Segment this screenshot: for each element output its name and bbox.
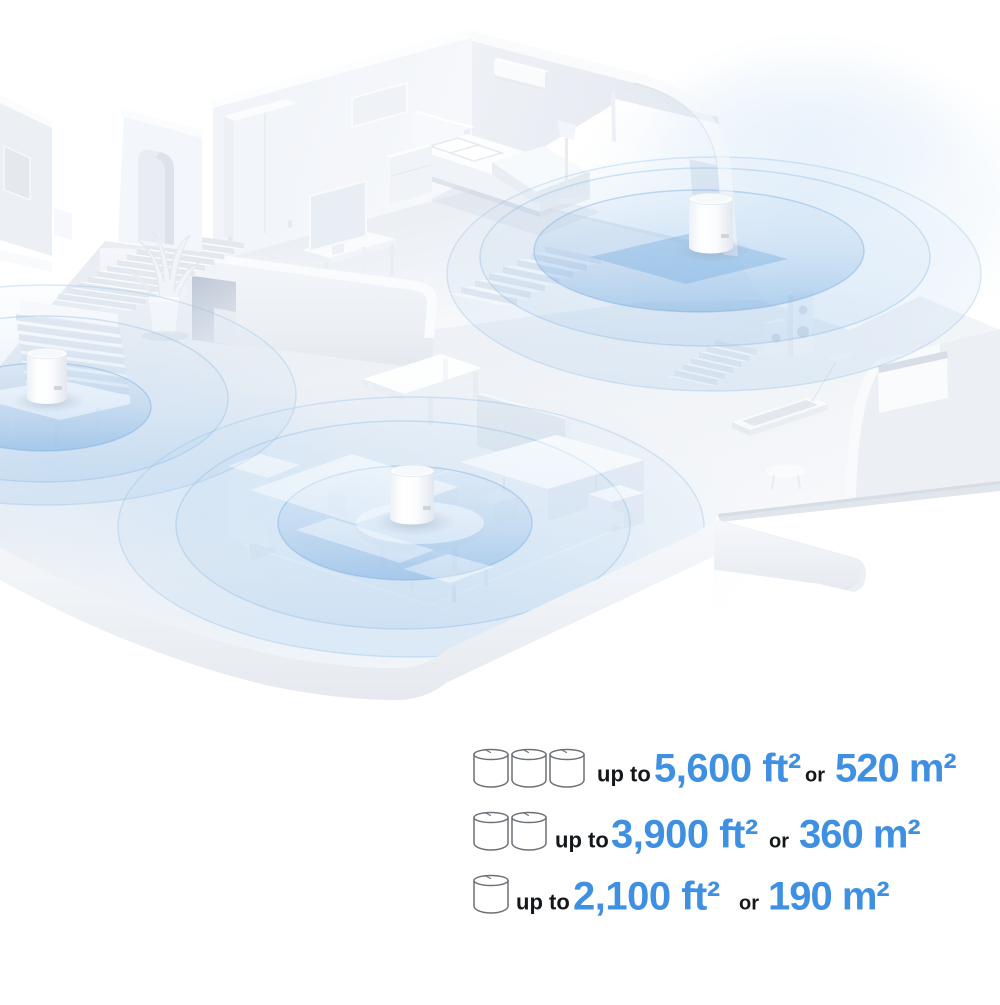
svg-text:2,100 ft²: 2,100 ft² — [573, 875, 720, 919]
svg-text:up to: up to — [516, 890, 570, 915]
svg-text:up to: up to — [555, 828, 609, 853]
svg-text:or: or — [769, 831, 789, 853]
svg-text:190 m²: 190 m² — [768, 875, 889, 919]
svg-text:or: or — [739, 893, 759, 915]
svg-text:5,600 ft²: 5,600 ft² — [654, 747, 801, 791]
svg-text:360 m²: 360 m² — [799, 813, 920, 857]
svg-text:520 m²: 520 m² — [835, 747, 956, 791]
svg-text:up to: up to — [597, 762, 651, 787]
svg-text:or: or — [805, 765, 825, 787]
svg-text:3,900 ft²: 3,900 ft² — [611, 813, 758, 857]
